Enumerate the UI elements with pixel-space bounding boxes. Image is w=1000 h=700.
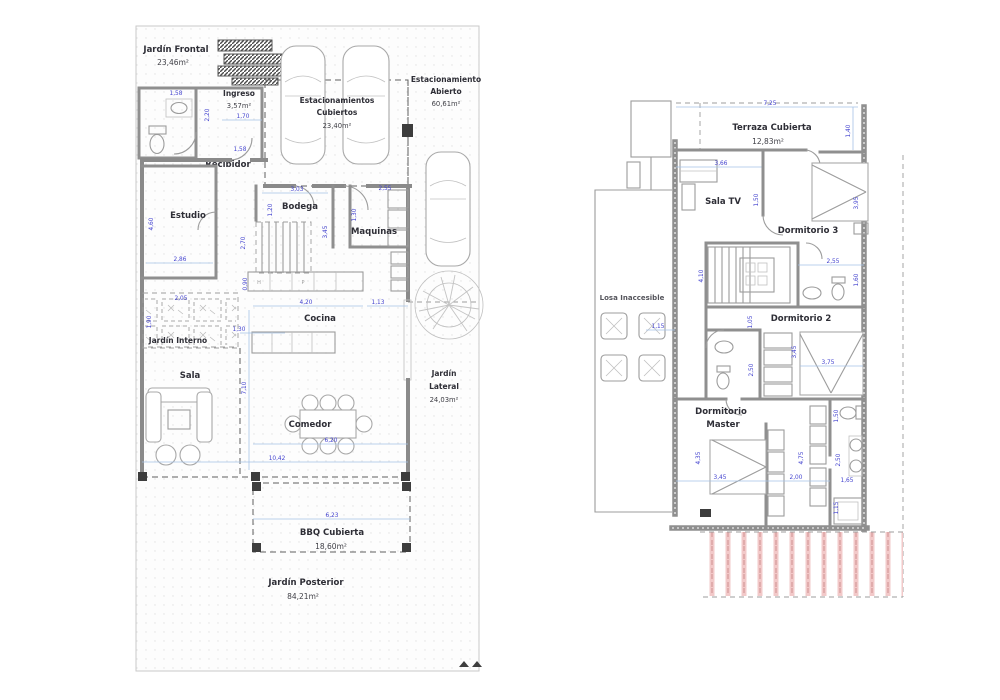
room-area-jardin-posterior: 84,21m² xyxy=(287,592,319,601)
room-label-losa: Losa Inaccesible xyxy=(600,294,665,302)
floorplan-canvas: Jardín Frontal 23,46m² Ingreso 3,57m² 1,… xyxy=(0,0,1000,700)
bed-icon xyxy=(710,440,766,494)
roof-hatch xyxy=(700,532,903,596)
car-icon xyxy=(343,46,389,164)
room-label-jardin-frontal: Jardín Frontal xyxy=(142,45,208,55)
dim-text: 1,70 xyxy=(237,114,250,120)
sink-icon xyxy=(803,287,821,299)
dim-text: 2,86 xyxy=(174,257,187,263)
column xyxy=(251,472,260,481)
dim-text: 2,50 xyxy=(749,363,755,376)
dim-text: 10,42 xyxy=(269,456,286,462)
sink-icon xyxy=(715,341,733,353)
column xyxy=(402,124,413,137)
dim-text: 1,40 xyxy=(846,124,852,137)
dim-text: 2,05 xyxy=(175,296,188,302)
column xyxy=(138,472,147,481)
dim-text: 1,13 xyxy=(372,300,385,306)
room-label-maquinas: Maquinas xyxy=(351,227,397,237)
dim-text: 1,50 xyxy=(834,409,840,422)
skylight-icon xyxy=(639,355,665,381)
dim-text: 1,30 xyxy=(352,208,358,221)
dim-text: 1,58 xyxy=(234,147,247,153)
dim-text: 1,58 xyxy=(170,91,183,97)
room-area-jardin-lateral: 24,03m² xyxy=(430,396,459,404)
dim-text: 2,55 xyxy=(379,186,392,192)
dim-text: 1,30 xyxy=(233,327,246,333)
room-label-est-abierto-1: Estacionamiento xyxy=(411,75,481,84)
column xyxy=(700,509,711,517)
dim-text: 2,00 xyxy=(790,475,803,481)
dim-text: 2,50 xyxy=(836,453,842,466)
dim-text: 1,60 xyxy=(854,273,860,286)
ground-floor-plan: Jardín Frontal 23,46m² Ingreso 3,57m² 1,… xyxy=(136,26,483,671)
dim-text: 3,45 xyxy=(792,345,798,358)
room-label-sala-tv: Sala TV xyxy=(705,197,741,207)
room-label-jardin-lateral-1: Jardín xyxy=(431,369,457,378)
room-area-ingreso: 3,57m² xyxy=(227,102,252,110)
car-icon xyxy=(426,152,470,266)
room-label-bodega: Bodega xyxy=(282,202,318,212)
toilet-icon xyxy=(832,277,845,300)
dim-text: 7,25 xyxy=(764,101,777,107)
room-label-cocina: Cocina xyxy=(304,314,336,324)
dim-text: 4,10 xyxy=(699,269,705,282)
room-area-est-cubiertos: 23,40m² xyxy=(323,122,352,130)
dim-text: 3,03 xyxy=(291,187,304,193)
dim-text: 1,50 xyxy=(754,193,760,206)
room-label-sala: Sala xyxy=(180,371,201,381)
closet-icon xyxy=(764,333,792,396)
room-label-ingreso: Ingreso xyxy=(223,89,255,98)
room-label-estudio: Estudio xyxy=(170,211,206,221)
bathroom-dorm3 xyxy=(706,243,864,307)
roof-connector xyxy=(627,101,671,190)
dim-text: 4,20 xyxy=(300,300,313,306)
room-label-jardin-posterior: Jardín Posterior xyxy=(267,578,344,588)
room-label-jardin-lateral-2: Lateral xyxy=(429,382,459,391)
room-label-master-2: Master xyxy=(706,420,740,430)
dim-text: 4,60 xyxy=(149,217,155,230)
room-label-dorm2: Dormitorio 2 xyxy=(771,314,832,324)
car-icon xyxy=(281,46,325,164)
column xyxy=(401,472,410,481)
dim-text: 3,45 xyxy=(714,475,727,481)
room-label-bbq: BBQ Cubierta xyxy=(300,528,364,538)
dim-text: 3,66 xyxy=(715,161,728,167)
room-area-jardin-frontal: 23,46m² xyxy=(157,58,189,67)
dim-text: 7,10 xyxy=(242,381,248,394)
skylight-icon xyxy=(601,355,627,381)
dim-text: 4,75 xyxy=(799,451,805,464)
closet-icon xyxy=(768,430,784,516)
dim-text: 1,15 xyxy=(834,501,840,514)
door-arc xyxy=(806,150,820,164)
room-label-est-cubiertos-2: Cubiertos xyxy=(317,108,358,117)
appliance-label: H xyxy=(257,280,261,286)
walkin-closet-icon xyxy=(810,406,826,506)
room-label-jardin-interno: Jardín Interno xyxy=(148,336,207,345)
door-arc xyxy=(806,243,822,259)
dim-text: 3,45 xyxy=(323,225,329,238)
room-label-est-abierto-2: Abierto xyxy=(430,87,461,96)
room-label-comedor: Comedor xyxy=(289,420,333,430)
dim-text: 2,70 xyxy=(241,236,247,249)
dim-text: 2,20 xyxy=(205,108,211,121)
toilet-icon xyxy=(840,406,862,419)
sink-icon xyxy=(849,436,862,476)
dim-text: 2,55 xyxy=(827,259,840,265)
upper-floor-plan: Losa Inaccesible 7,25 1,40 Terraza Cubie… xyxy=(595,101,903,597)
skylight-icon xyxy=(601,313,627,339)
losa-area xyxy=(595,190,672,512)
dim-text: 1,05 xyxy=(748,315,754,328)
room-label-master-1: Dormitorio xyxy=(695,407,747,417)
dim-text: 1,20 xyxy=(268,203,274,216)
room-area-bbq: 18,60m² xyxy=(315,542,347,551)
room-area-est-abierto: 60,61m² xyxy=(432,100,461,108)
room-label-terraza: Terraza Cubierta xyxy=(732,123,812,133)
appliance-label: P xyxy=(301,280,304,286)
dim-text: 6,23 xyxy=(326,513,339,519)
room-area-terraza: 12,83m² xyxy=(752,137,784,146)
dim-text: 1,90 xyxy=(147,315,153,328)
dim-text: 1,15 xyxy=(652,324,665,330)
room-label-est-cubiertos-1: Estacionamientos xyxy=(300,96,375,105)
dim-text: 3,75 xyxy=(822,360,835,366)
floorplan-drawing: Jardín Frontal 23,46m² Ingreso 3,57m² 1,… xyxy=(0,0,1000,700)
dim-text: 3,95 xyxy=(854,196,860,209)
stairs-icon xyxy=(706,243,790,307)
dim-text: 4,35 xyxy=(696,451,702,464)
dim-text: 1,65 xyxy=(841,478,854,484)
toilet-icon xyxy=(717,366,730,389)
dim-text: 6,20 xyxy=(325,438,338,444)
room-label-dorm3: Dormitorio 3 xyxy=(778,226,839,236)
